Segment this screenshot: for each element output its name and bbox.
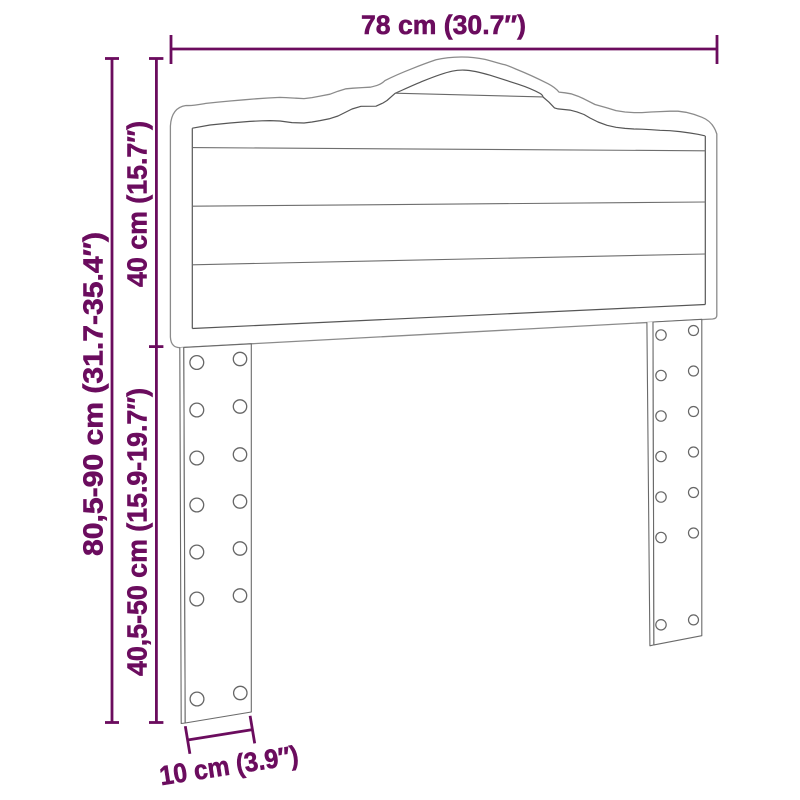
svg-text:78 cm (30.7″): 78 cm (30.7″) — [361, 10, 526, 40]
svg-text:80,5-90 cm (31.7-35.4″): 80,5-90 cm (31.7-35.4″) — [77, 232, 108, 556]
svg-text:40 cm (15.7″): 40 cm (15.7″) — [121, 121, 152, 287]
svg-text:40,5-50 cm (15.9-19.7″): 40,5-50 cm (15.9-19.7″) — [121, 388, 152, 676]
